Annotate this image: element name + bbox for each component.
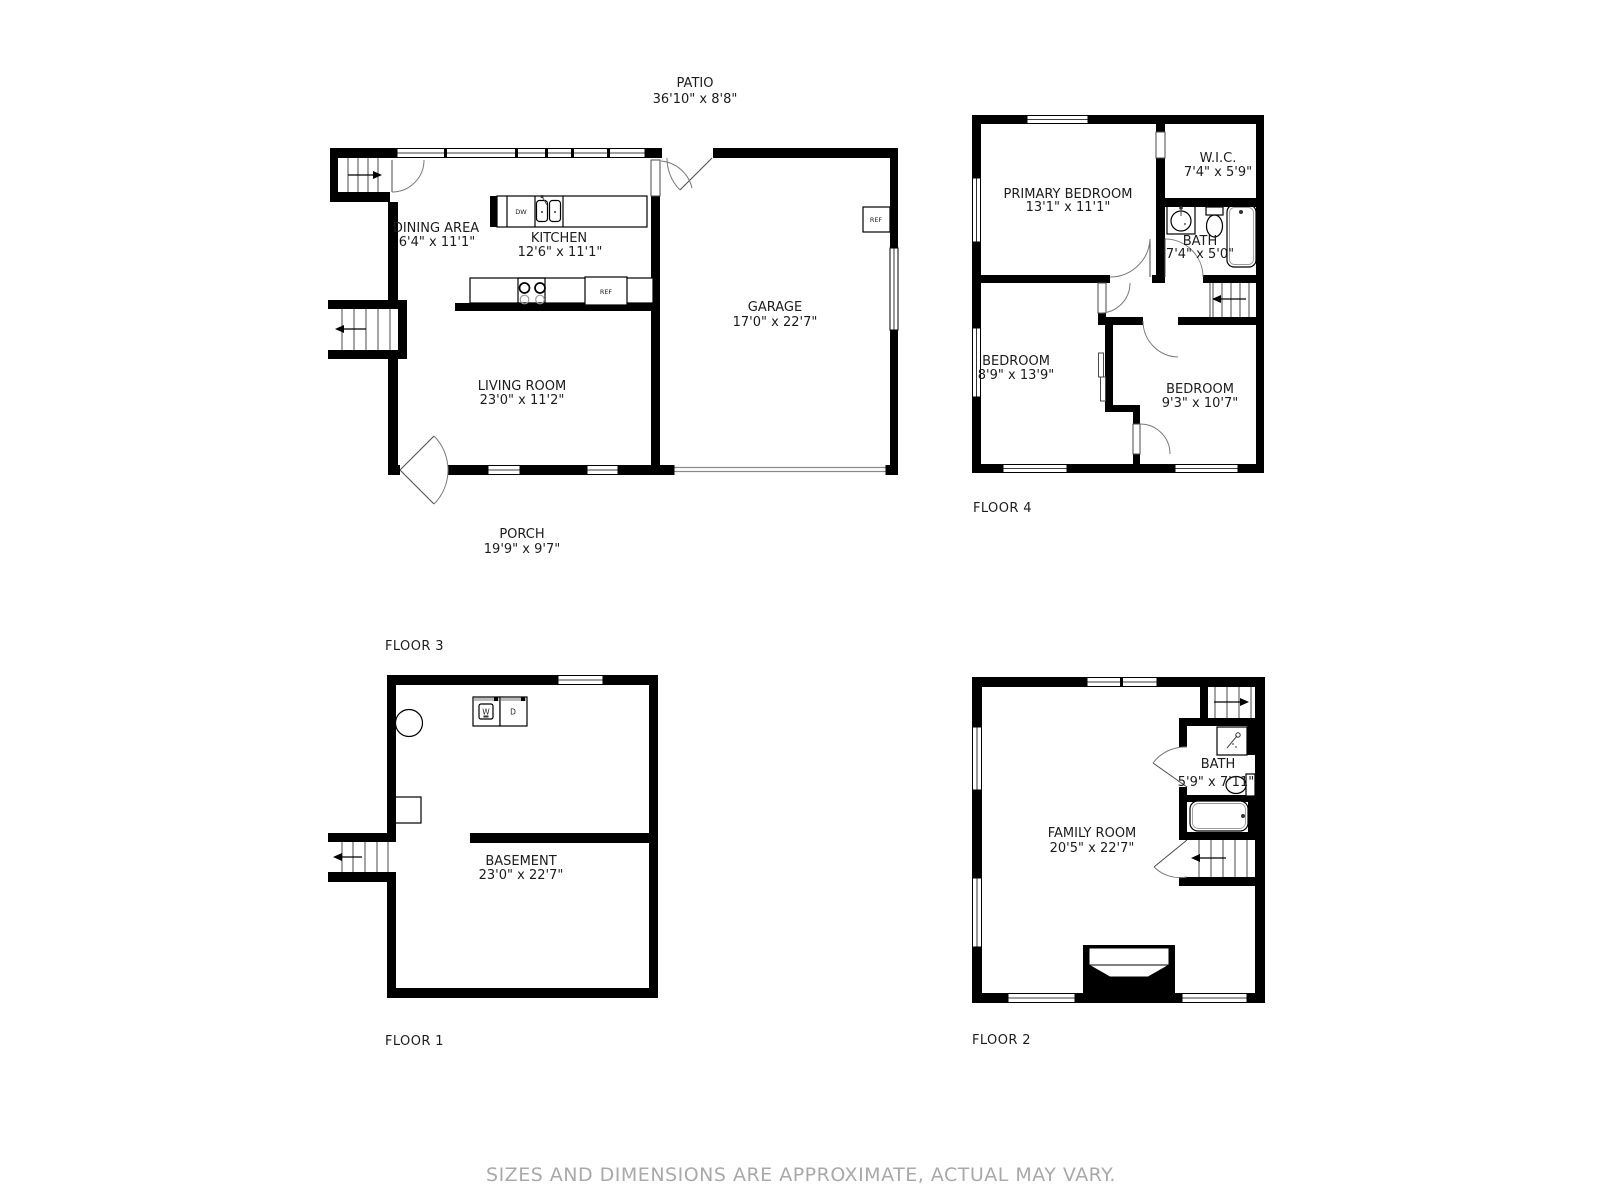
room-label-kitchen: KITCHEN	[531, 231, 587, 246]
room-dims-primary: 13'1" x 11'1"	[1026, 200, 1111, 215]
disclaimer-text: SIZES AND DIMENSIONS ARE APPROXIMATE, AC…	[486, 1164, 1116, 1186]
door-dining-stairs	[392, 160, 424, 192]
floorplan-canvas: PATIO 36'10" x 8'8"	[0, 0, 1600, 1200]
stair-direction-arrow	[1191, 854, 1226, 862]
floor1-plan: FLOOR 3	[328, 639, 658, 1049]
room-label-wic: W.I.C.	[1200, 151, 1237, 166]
furnace-icon	[395, 797, 421, 823]
kitchen-counter-upper: DW	[490, 195, 647, 227]
floor1-staircase	[330, 842, 396, 872]
bathtub-icon	[1190, 801, 1248, 831]
room-dims-porch: 19'9" x 9'7"	[484, 542, 560, 557]
svg-text:REF: REF	[870, 216, 883, 224]
dishwasher-icon: DW	[515, 208, 527, 216]
room-label-living: LIVING ROOM	[478, 379, 566, 394]
door-front-entry	[400, 436, 448, 504]
room-label-bedroom-right: BEDROOM	[1166, 382, 1234, 397]
kitchen-counter-lower: REF	[470, 277, 653, 305]
room-dims-wic: 7'4" x 5'9"	[1184, 165, 1252, 180]
door-stairs-floor2	[1154, 840, 1187, 878]
svg-text:REF: REF	[600, 288, 613, 296]
floor4-plan: PRIMARY BEDROOM 13'1" x 11'1" W.I.C. 7'4…	[972, 115, 1264, 516]
room-label-basement: BASEMENT	[485, 854, 556, 869]
room-dims-dining: 6'4" x 11'1"	[399, 235, 475, 250]
door-bedroom-left	[1098, 283, 1130, 313]
dryer-icon: D	[500, 697, 527, 726]
floor3-lower-staircase	[330, 309, 398, 350]
room-label-garage: GARAGE	[748, 300, 802, 315]
door-garage-rear	[667, 158, 712, 190]
room-dims-bath4: 7'4" x 5'0"	[1166, 247, 1234, 262]
door-bedroom-right	[1143, 321, 1178, 357]
toilet-icon	[1206, 207, 1223, 237]
closet-sliding-door	[1099, 353, 1106, 401]
water-heater-icon	[396, 710, 423, 737]
refrigerator-icon: REF	[585, 277, 627, 305]
floor4-label: FLOOR 4	[973, 501, 1032, 516]
door-wic	[1156, 132, 1165, 158]
floor2-upper-staircase	[1214, 687, 1251, 718]
sink-icon	[1167, 206, 1195, 234]
room-label-family: FAMILY ROOM	[1048, 826, 1137, 841]
room-dims-patio: 36'10" x 8'8"	[653, 92, 738, 107]
floor3-label: FLOOR 3	[385, 639, 444, 654]
shower-icon	[1217, 727, 1247, 755]
room-dims-bedroom-left: 8'9" x 13'9"	[978, 368, 1054, 383]
fireplace-icon	[1083, 945, 1175, 998]
floor1-label: FLOOR 1	[385, 1034, 444, 1049]
door-primary-bedroom	[1110, 239, 1150, 277]
stair-direction-arrow	[1212, 295, 1246, 303]
room-dims-garage: 17'0" x 22'7"	[733, 315, 818, 330]
room-dims-kitchen: 12'6" x 11'1"	[518, 245, 603, 260]
room-label-patio: PATIO	[677, 76, 714, 91]
svg-text:D: D	[510, 708, 516, 717]
floor2-label: FLOOR 2	[972, 1033, 1031, 1048]
room-label-dining: DINING AREA	[393, 221, 479, 236]
room-dims-bath2: 5'9" x 7'11"	[1178, 775, 1254, 790]
washer-icon: W	[473, 697, 500, 726]
room-dims-basement: 23'0" x 22'7"	[479, 868, 564, 883]
room-label-porch: PORCH	[499, 527, 544, 542]
room-label-bedroom-left: BEDROOM	[982, 354, 1050, 369]
svg-text:W: W	[482, 708, 490, 717]
stair-direction-arrow	[1214, 698, 1249, 706]
floor4-staircase	[1210, 283, 1249, 317]
floor3-upper-staircase	[338, 158, 388, 192]
garage-door	[672, 465, 888, 475]
room-dims-family: 20'5" x 22'7"	[1050, 841, 1135, 856]
refrigerator-icon: REF	[863, 207, 890, 232]
floor2-plan: FAMILY ROOM 20'5" x 22'7" BATH 5'9" x 7'…	[972, 677, 1265, 1048]
room-dims-bedroom-right: 9'3" x 10'7"	[1162, 396, 1238, 411]
floor3-plan: PATIO 36'10" x 8'8"	[328, 76, 898, 557]
door-closet	[1133, 424, 1170, 454]
floorplan-page: PATIO 36'10" x 8'8"	[0, 0, 1600, 1200]
room-label-bath2: BATH	[1201, 757, 1236, 772]
room-dims-living: 23'0" x 11'2"	[480, 393, 565, 408]
floor2-lower-staircase	[1191, 840, 1247, 877]
